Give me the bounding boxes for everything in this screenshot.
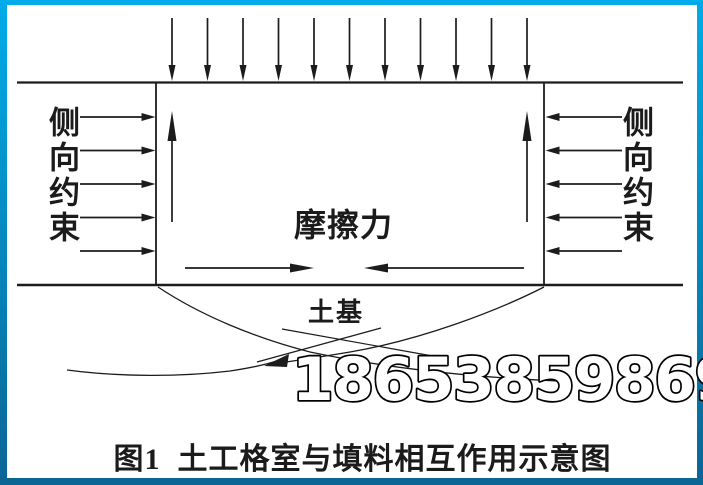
force-arrow [546, 113, 560, 121]
watermark-number: 18653859869 [292, 345, 703, 415]
force-arrow [546, 147, 560, 155]
force-arrow [168, 111, 177, 141]
force-arrow [546, 247, 560, 255]
force-arrow [523, 111, 532, 141]
force-arrow [142, 180, 156, 188]
force-arrow [546, 214, 560, 222]
force-arrow [417, 65, 424, 81]
force-arrow [364, 264, 388, 273]
left-constraint-label: 侧向约束 [46, 106, 77, 246]
force-arrow [311, 65, 318, 81]
figure-caption: 图1 土工格室与填料相互作用示意图 [0, 434, 703, 478]
force-arrow [142, 113, 156, 121]
force-arrow [142, 247, 156, 255]
friction-label: 摩擦力 [294, 200, 393, 246]
force-arrow [275, 65, 282, 81]
force-arrow [346, 65, 353, 81]
force-arrow [240, 65, 247, 81]
force-arrow [142, 147, 156, 155]
slip-curve-arrowhead [264, 354, 289, 367]
figure-stage: 18653859869 侧向约束 侧向约束 摩擦力 土基 图1 土工格室与填料相… [0, 0, 703, 485]
force-arrow [488, 65, 495, 81]
subgrade-label: 土基 [308, 292, 364, 329]
force-arrow [453, 65, 460, 81]
force-arrow [382, 65, 389, 81]
force-arrow [142, 214, 156, 222]
force-arrow [204, 65, 211, 81]
right-constraint-label: 侧向约束 [620, 106, 651, 246]
force-arrow [546, 180, 560, 188]
slip-curve-shallow [67, 360, 280, 375]
force-arrow [524, 65, 531, 81]
force-arrow [169, 65, 176, 81]
force-arrow [290, 264, 314, 273]
